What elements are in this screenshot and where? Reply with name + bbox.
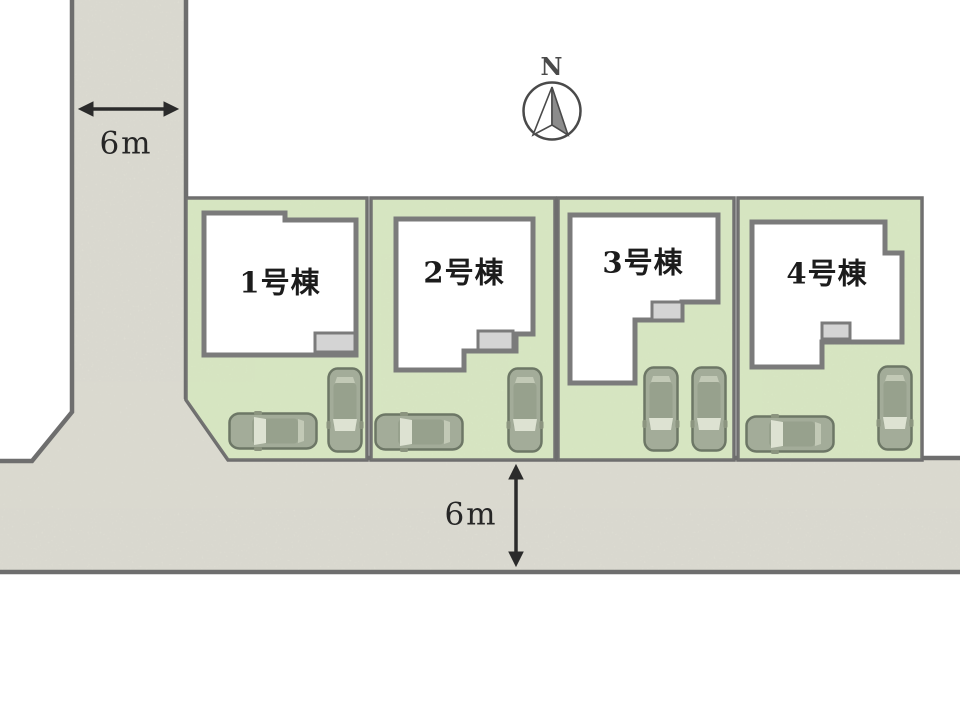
vertical-road-width-label: 6m — [99, 129, 152, 160]
car-icon — [230, 411, 317, 451]
site-plan: N 6m 6m 1号棟 2号棟 3号棟 4号棟 — [0, 0, 960, 720]
horizontal-road-width-label: 6m — [444, 500, 497, 531]
car-icon — [507, 369, 544, 452]
house-2-porch — [478, 331, 513, 350]
car-icon — [327, 369, 364, 452]
house-4-porch — [822, 323, 850, 339]
lot-3-label: 3号棟 — [602, 249, 683, 278]
house-1-porch — [315, 333, 355, 352]
car-icon — [376, 412, 463, 452]
north-label: N — [541, 55, 564, 79]
car-icon — [643, 368, 680, 451]
site-plan-graphic — [0, 0, 960, 720]
compass-icon — [524, 83, 581, 140]
lot-4-label: 4号棟 — [786, 260, 867, 289]
house-3-porch — [652, 302, 682, 320]
car-icon — [747, 414, 834, 454]
car-icon — [877, 367, 914, 450]
lot-2-label: 2号棟 — [423, 259, 504, 288]
car-icon — [691, 368, 728, 451]
lot-1-label: 1号棟 — [239, 269, 320, 298]
